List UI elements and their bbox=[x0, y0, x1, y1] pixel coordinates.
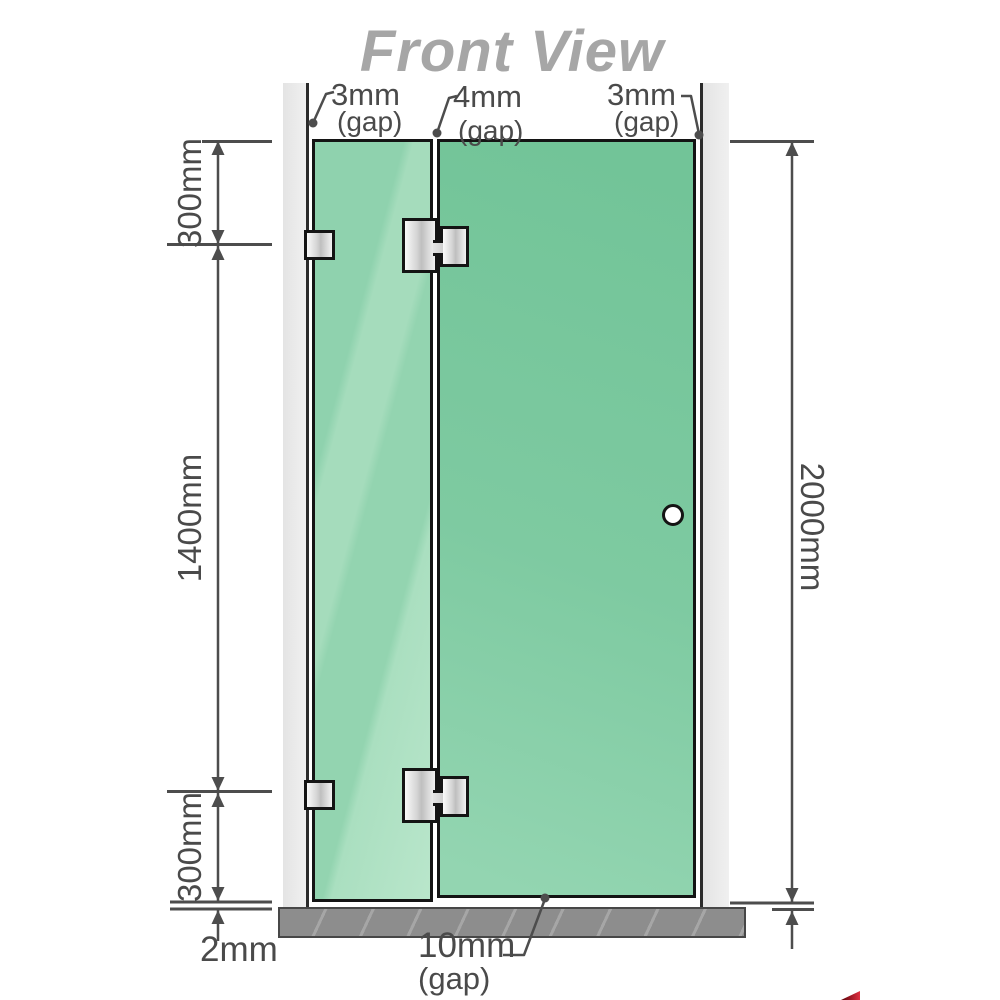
gap-label-bottom-value: 10mm bbox=[418, 926, 515, 966]
diagram-title: Front View bbox=[360, 18, 664, 85]
door-glass-panel bbox=[437, 139, 696, 898]
wall-bracket-bottom bbox=[304, 780, 335, 810]
gap-label-top-center-unit: (gap) bbox=[458, 115, 523, 147]
dimension-left-bottom: 300mm bbox=[171, 792, 209, 902]
gap-label-top-center-value: 4mm bbox=[453, 79, 522, 115]
dimension-floor-gap: 2mm bbox=[200, 930, 278, 970]
gap-label-top-left-unit: (gap) bbox=[337, 106, 402, 138]
shower-screen-front-view-diagram: Front View bbox=[0, 0, 1000, 1000]
right-wall-channel bbox=[703, 83, 729, 907]
right-wall-edge-line bbox=[700, 83, 703, 907]
center-hinge-top-knuckle bbox=[433, 240, 443, 256]
dimension-left-middle: 1400mm bbox=[171, 454, 209, 582]
gap-label-top-right-unit: (gap) bbox=[614, 106, 679, 138]
dimension-right-total: 2000mm bbox=[793, 463, 831, 591]
dimension-left-top: 300mm bbox=[171, 138, 209, 248]
door-knob bbox=[662, 504, 684, 526]
center-hinge-bottom-knuckle bbox=[433, 790, 443, 806]
wall-bracket-top bbox=[304, 230, 335, 260]
center-hinge-top-right-plate bbox=[440, 226, 469, 267]
red-corner-mark bbox=[841, 991, 860, 1000]
center-hinge-bottom-right-plate bbox=[440, 776, 469, 817]
gap-label-bottom-unit: (gap) bbox=[418, 961, 490, 997]
left-wall-channel bbox=[283, 83, 306, 907]
